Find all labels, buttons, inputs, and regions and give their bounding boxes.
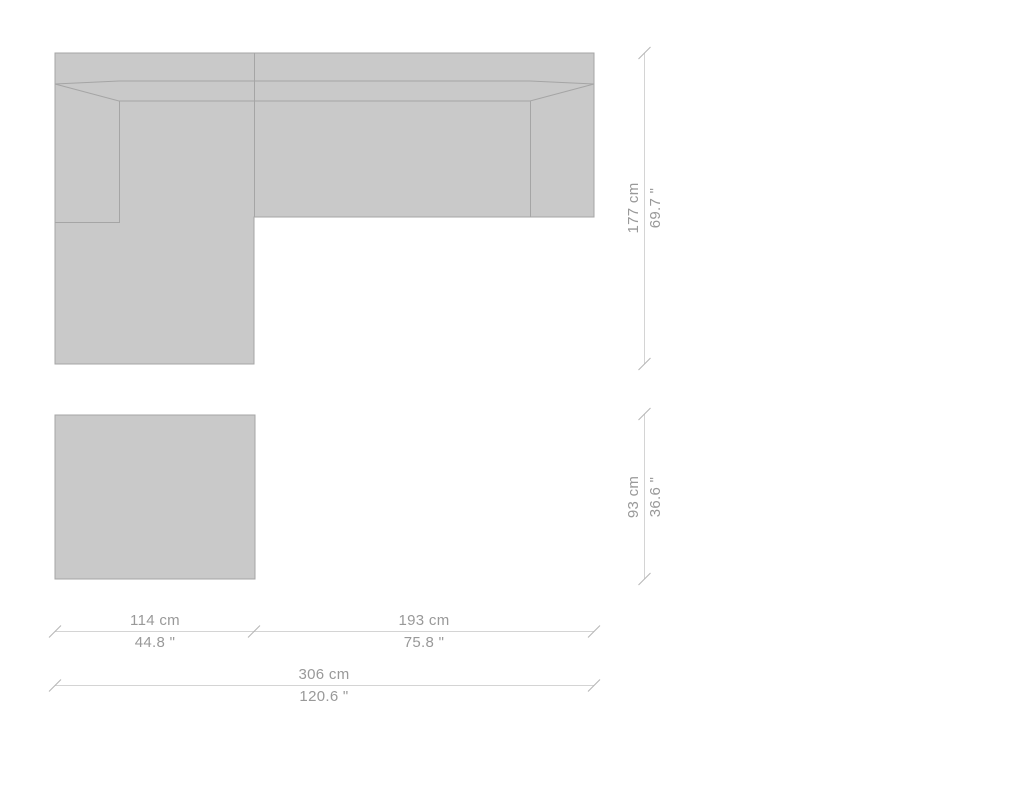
dimension-label-sofa-depth: 177 cm 69.7 " (623, 183, 667, 234)
dimension-value-cm: 114 cm (130, 610, 180, 632)
dimension-label-chaise-width: 114 cm 44.8 " (130, 610, 180, 654)
dimension-value-cm: 193 cm (399, 610, 450, 632)
dimension-value-cm: 93 cm (623, 476, 645, 518)
dimension-value-inches: 120.6 " (299, 686, 350, 708)
ottoman-body (55, 415, 255, 579)
dimension-value-inches: 69.7 " (645, 183, 667, 234)
dimension-label-sofa-body-width: 193 cm 75.8 " (399, 610, 450, 654)
sofa-shape (55, 53, 594, 364)
dimension-label-total-width: 306 cm 120.6 " (299, 664, 350, 708)
dimension-value-inches: 44.8 " (130, 632, 180, 654)
dimension-value-inches: 75.8 " (399, 632, 450, 654)
dimension-label-ottoman-depth: 93 cm 36.6 " (623, 476, 667, 518)
dimension-value-inches: 36.6 " (645, 476, 667, 518)
dimension-value-cm: 177 cm (623, 183, 645, 234)
sofa-dimension-diagram: 177 cm 69.7 " 93 cm 36.6 " 114 cm 44.8 "… (0, 0, 1024, 806)
dimension-value-cm: 306 cm (299, 664, 350, 686)
sofa-l-shape-body (55, 53, 594, 364)
sofa-top-view-drawing (0, 0, 1024, 806)
